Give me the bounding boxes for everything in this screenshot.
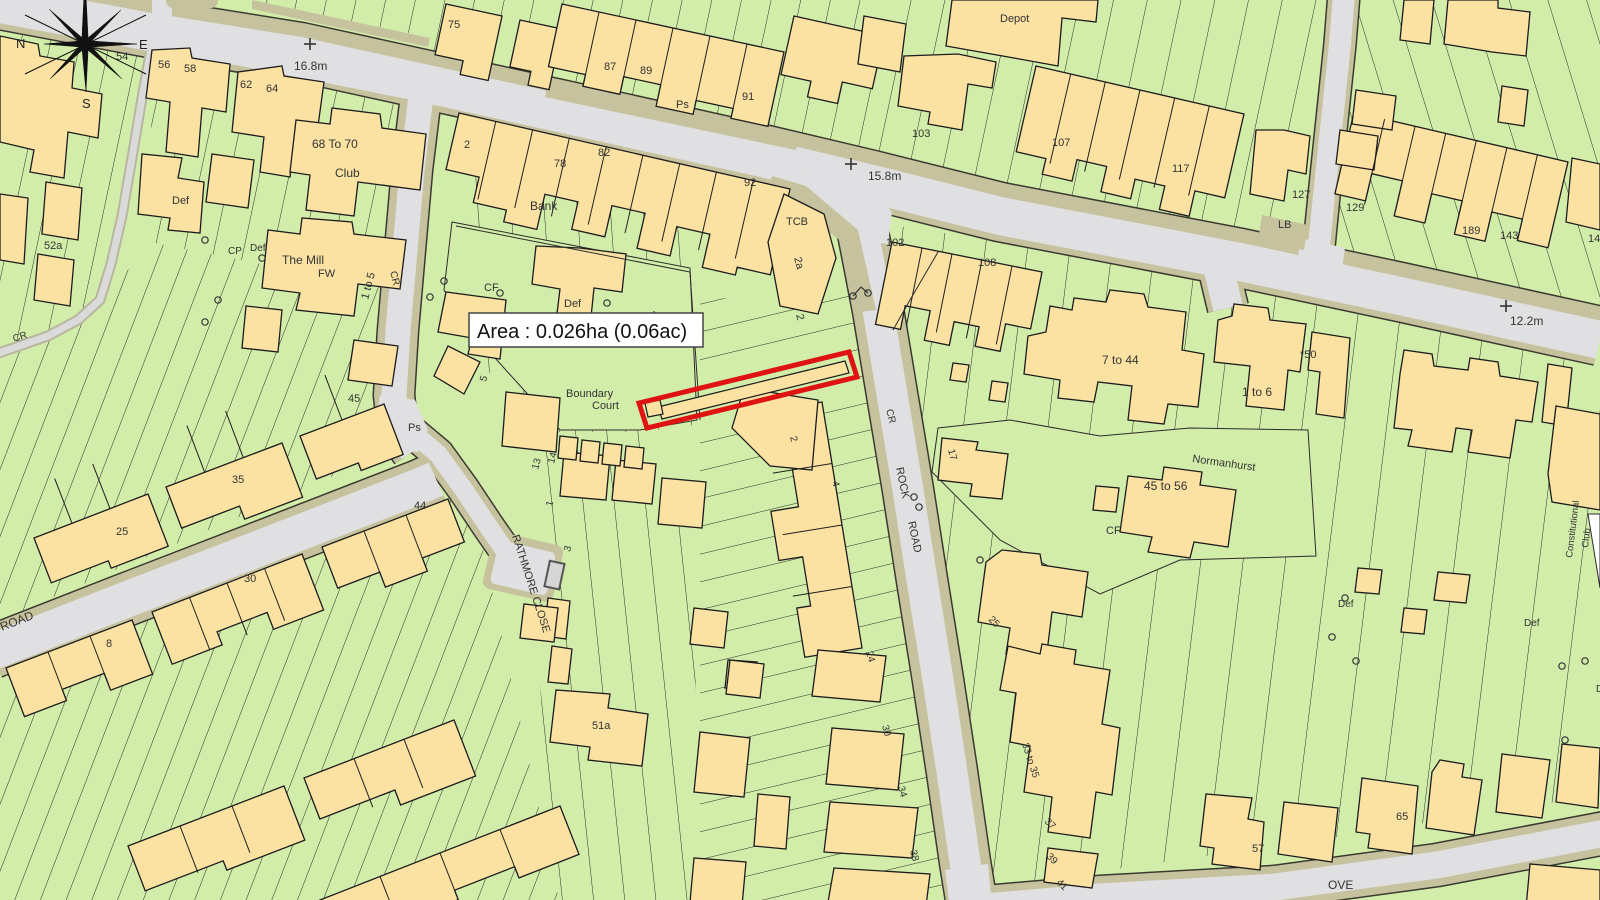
svg-text:Def: Def: [1524, 618, 1540, 629]
svg-text:N: N: [16, 36, 25, 51]
svg-text:Boundary: Boundary: [566, 388, 614, 400]
svg-text:Court: Court: [592, 400, 619, 412]
svg-text:45 to 56: 45 to 56: [1144, 479, 1188, 493]
svg-text:Def: Def: [564, 298, 582, 310]
svg-text:62: 62: [240, 79, 252, 91]
svg-text:52a: 52a: [44, 240, 63, 252]
svg-text:92: 92: [744, 177, 756, 189]
svg-text:CF: CF: [484, 282, 499, 294]
svg-text:103: 103: [912, 128, 930, 140]
svg-text:7 to 44: 7 to 44: [1102, 353, 1139, 367]
svg-text:12.2m: 12.2m: [1510, 314, 1543, 328]
svg-text:102: 102: [886, 237, 904, 249]
svg-text:14: 14: [1588, 233, 1600, 245]
svg-text:D: D: [1596, 684, 1600, 695]
svg-text:LB: LB: [1278, 219, 1291, 231]
svg-text:75: 75: [448, 19, 460, 31]
svg-text:57: 57: [1252, 843, 1264, 855]
svg-text:65: 65: [1396, 811, 1408, 823]
svg-text:51a: 51a: [592, 720, 611, 732]
svg-text:Depot: Depot: [1000, 13, 1029, 25]
svg-text:25: 25: [116, 526, 128, 538]
svg-text:127: 127: [1292, 189, 1310, 201]
svg-text:30: 30: [244, 573, 256, 585]
svg-text:16.8m: 16.8m: [294, 59, 327, 73]
svg-text:Club: Club: [335, 166, 360, 180]
svg-text:107: 107: [1052, 137, 1070, 149]
svg-text:78: 78: [554, 158, 566, 170]
svg-text:The Mill: The Mill: [282, 253, 324, 267]
svg-text:189: 189: [1462, 225, 1480, 237]
svg-text:2: 2: [464, 139, 470, 151]
svg-text:64: 64: [266, 83, 278, 95]
svg-text:1 to 6: 1 to 6: [1242, 385, 1272, 399]
svg-text:89: 89: [640, 65, 652, 77]
svg-text:Ps: Ps: [408, 422, 421, 434]
svg-text:TCB: TCB: [786, 216, 808, 228]
svg-text:*50: *50: [1300, 349, 1317, 361]
svg-text:108: 108: [978, 257, 996, 269]
svg-text:OVE: OVE: [1328, 878, 1353, 892]
svg-text:15.8m: 15.8m: [868, 169, 901, 183]
svg-text:87: 87: [604, 61, 616, 73]
svg-text:45: 45: [348, 393, 360, 405]
svg-text:117: 117: [1172, 163, 1190, 175]
svg-text:58: 58: [184, 63, 196, 75]
svg-text:CF: CF: [1106, 525, 1121, 537]
svg-text:Def: Def: [1338, 599, 1354, 610]
svg-text:Area : 0.026ha (0.06ac): Area : 0.026ha (0.06ac): [477, 321, 687, 343]
svg-text:68 To 70: 68 To 70: [312, 137, 358, 151]
svg-text:Bank: Bank: [530, 199, 558, 213]
svg-text:44: 44: [414, 500, 426, 512]
svg-text:Def: Def: [172, 195, 190, 207]
svg-text:56: 56: [158, 59, 170, 71]
svg-text:Def: Def: [250, 243, 266, 254]
svg-text:82: 82: [598, 147, 610, 159]
svg-text:91: 91: [742, 91, 754, 103]
svg-text:FW: FW: [318, 268, 336, 280]
svg-text:CP: CP: [228, 246, 242, 257]
svg-text:8: 8: [106, 638, 112, 650]
svg-text:35: 35: [232, 474, 244, 486]
svg-text:E: E: [139, 37, 148, 52]
svg-text:129: 129: [1346, 202, 1364, 214]
svg-text:54: 54: [116, 51, 128, 63]
svg-text:Ps: Ps: [676, 99, 689, 111]
svg-text:143: 143: [1500, 230, 1518, 242]
svg-text:S: S: [82, 96, 91, 111]
